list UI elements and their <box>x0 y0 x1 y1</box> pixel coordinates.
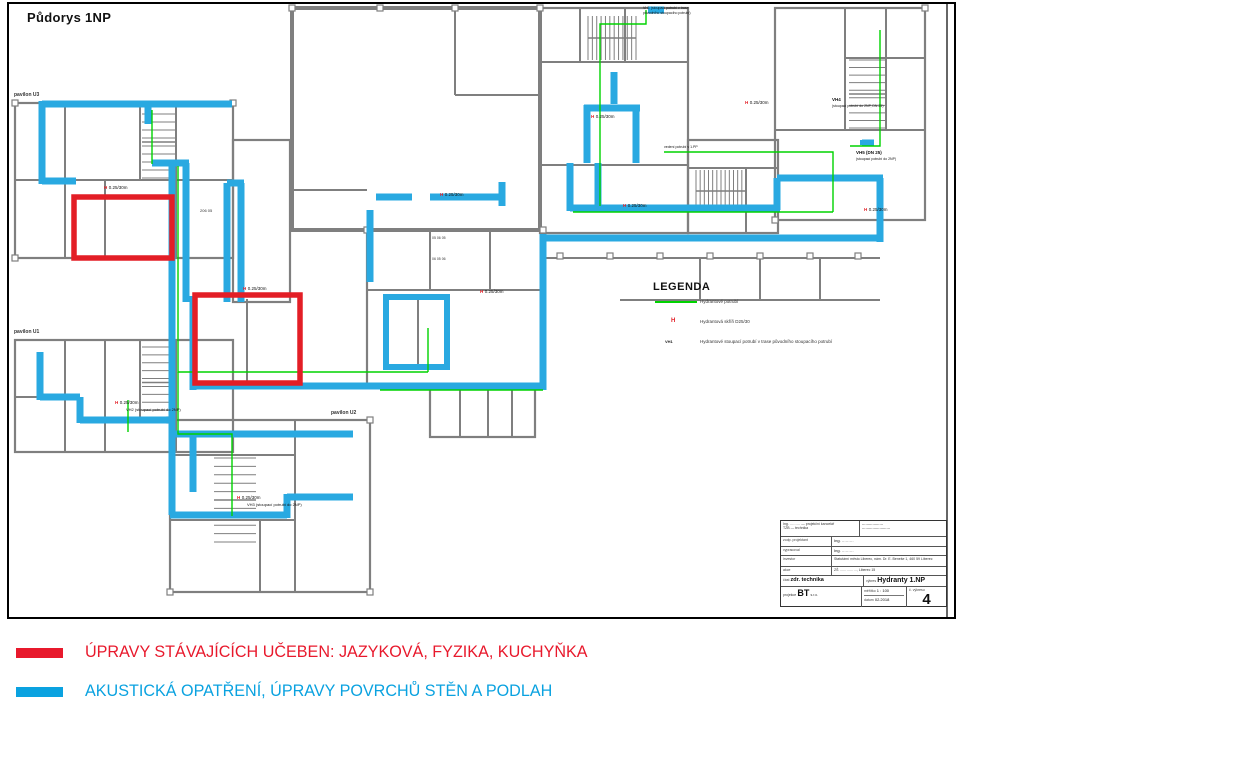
sheet-title: Půdorys 1NP <box>27 10 111 25</box>
vh1-glyph: VH1 <box>665 339 673 344</box>
stamp-note: projekce <box>783 593 796 597</box>
part-cell: část zdr. technika <box>781 576 863 586</box>
vh1-note: původního stoupacího potrubí) <box>643 11 690 15</box>
legend-item-pipe: Hydrantové potrubí <box>653 297 933 313</box>
stamp-logo: BT <box>797 588 809 598</box>
drawing-label: výkres <box>866 579 876 583</box>
hydrant-H-glyph: H <box>591 114 594 119</box>
hydrant-marker: H0.25/30m <box>243 286 267 291</box>
wall-outline <box>367 230 543 386</box>
scale-date-cell: měřítko 1 : 100 datum 02.2018 <box>861 587 906 607</box>
row-label: zodp. projektant <box>781 537 831 546</box>
column-marker <box>452 5 458 11</box>
footer-red-label: ÚPRAVY STÁVAJÍCÍCH UČEBEN: JAZYKOVÁ, FYZ… <box>85 642 588 662</box>
row-value: ZŠ ……………, Liberec 15 <box>831 567 946 575</box>
drawing-title: Hydranty 1.NP <box>877 577 925 584</box>
column-marker <box>757 253 763 259</box>
title-block: Ing. ……… — projekční kancelář TZB — tech… <box>780 520 947 607</box>
hydrant-marker: H0.25/30m <box>591 114 615 119</box>
screenshot-root: H0.25/30mH0.25/30mH0.25/30mH0.25/30mH0.2… <box>0 0 1252 758</box>
hydrant-spec-text: 0.25/30m <box>485 289 504 294</box>
blue-swatch <box>16 687 63 697</box>
hydrant-marker: H0.25/30m <box>104 185 128 190</box>
legend-item-label: Hydrantové stoupací potrubí v trase půvo… <box>700 339 832 344</box>
footer-legend-row-blue: AKUSTICKÁ OPATŘENÍ, ÚPRAVY POVRCHŮ STĚN … <box>0 684 1252 702</box>
hydrant-H-glyph: H <box>671 318 675 324</box>
hydrant-H-icon: H <box>653 317 697 327</box>
wall-outline <box>775 8 925 220</box>
column-marker <box>807 253 813 259</box>
date-label: datum <box>864 598 874 602</box>
column-marker <box>540 227 546 233</box>
drawing-cell: výkres Hydranty 1.NP <box>863 576 946 586</box>
scale-value: 1 : 100 <box>877 588 889 593</box>
column-marker <box>377 5 383 11</box>
row-label: vypracoval <box>781 547 831 555</box>
row-label: investor <box>781 556 831 566</box>
stamp-note: s.r.o. <box>810 593 818 597</box>
column-marker <box>922 5 928 11</box>
hydrant-spec-text: 0.25/30m <box>596 114 615 119</box>
pipe-note: vedení potrubí v 1.PP <box>664 145 698 149</box>
title-block-company: Ing. ……… — projekční kancelář TZB — tech… <box>781 521 859 536</box>
title-block-row: vypracoval Ing. ……… <box>781 547 946 556</box>
hydrant-spec-text: 0.25/30m <box>628 203 647 208</box>
title-block-row: zodp. projektant Ing. ……… <box>781 537 946 547</box>
column-marker <box>707 253 713 259</box>
hydrant-marker: H0.25/30m <box>237 495 261 500</box>
hydrant-marker: H0.25/30m <box>745 100 769 105</box>
sheet-number: 4 <box>909 592 944 607</box>
footer-legend-row-red: ÚPRAVY STÁVAJÍCÍCH UČEBEN: JAZYKOVÁ, FYZ… <box>0 645 1252 663</box>
vh5-note: (stoupací potrubí do 2NP) <box>856 157 896 161</box>
project-line: …………………… <box>862 526 944 530</box>
part-label: část <box>783 578 789 582</box>
column-marker <box>607 253 613 259</box>
vh4-note: (stoupací potrubí do 2NP, DN 25) <box>832 104 884 108</box>
hydrant-spec-text: 0.25/30m <box>445 192 464 197</box>
vh5-riser-mark <box>860 140 870 145</box>
room-label: 06 05 06 <box>432 257 446 261</box>
wall-outline <box>430 386 535 437</box>
row-value: Ing. ……… <box>831 537 946 546</box>
hydrant-marker: H0.25/30m <box>864 207 888 212</box>
column-marker <box>289 5 295 11</box>
hydrant-pipe <box>850 30 880 146</box>
acoustic-highlight-room <box>386 297 447 367</box>
column-marker <box>167 589 173 595</box>
legend-panel: LEGENDA Hydrantové potrubí H Hydrantová … <box>653 281 933 353</box>
scale-label: měřítko <box>864 589 876 593</box>
title-block-project: ……………… …………………… <box>859 521 946 536</box>
room-label: 05 06 05 <box>432 236 446 240</box>
row-label: akce <box>781 567 831 575</box>
hydrant-pipe <box>664 152 833 212</box>
column-marker <box>12 255 18 261</box>
title-block-row: akce ZŠ ……………, Liberec 15 <box>781 567 946 576</box>
hydrant-spec-text: 0.25/30m <box>120 400 139 405</box>
column-marker <box>772 217 778 223</box>
column-marker <box>367 417 373 423</box>
legend-title: LEGENDA <box>653 281 933 293</box>
title-block-bottom-row: projekce BT s.r.o. měřítko 1 : 100 datum… <box>781 587 946 607</box>
company-line: TZB — technika <box>783 526 857 530</box>
hydrant-spec-text: 0.25/30m <box>750 100 769 105</box>
column-marker <box>855 253 861 259</box>
column-marker <box>657 253 663 259</box>
green-line-icon <box>653 297 697 307</box>
stamp-cell: projekce BT s.r.o. <box>781 587 861 607</box>
column-marker <box>12 100 18 106</box>
pavilion-label-u1: pavilon U1 <box>14 329 39 335</box>
row-value: Statutární město Liberec, nám. Dr. E. Be… <box>831 556 946 566</box>
hydrant-H-glyph: H <box>864 207 867 212</box>
acoustic-highlight-layer <box>40 10 883 518</box>
legend-item-riser: VH1 Hydrantové stoupací potrubí v trase … <box>653 337 933 353</box>
hydrant-pipe <box>178 372 232 516</box>
title-block-header-row: Ing. ……… — projekční kancelář TZB — tech… <box>781 521 946 537</box>
date-value: 02.2018 <box>875 597 889 602</box>
hydrant-H-glyph: H <box>243 286 246 291</box>
legend-item-hydrant-box: H Hydrantová skříň D25/30 <box>653 317 933 333</box>
red-swatch <box>16 648 63 658</box>
legend-item-label: Hydrantová skříň D25/30 <box>700 319 750 324</box>
vh1-note: VH1 (stoupací potrubí v trase <box>643 6 689 10</box>
title-block-row: investor Statutární město Liberec, nám. … <box>781 556 946 567</box>
classroom-highlight <box>74 197 172 258</box>
hydrant-H-glyph: H <box>745 100 748 105</box>
title-block-part-row: část zdr. technika výkres Hydranty 1.NP <box>781 576 946 587</box>
part-value: zdr. technika <box>791 577 824 583</box>
column-marker <box>367 589 373 595</box>
room-label: 206 05 <box>200 208 213 213</box>
hydrant-spec-text: 0.25/30m <box>869 207 888 212</box>
legend-item-label: Hydrantové potrubí <box>700 299 738 304</box>
row-value: Ing. ……… <box>831 547 946 555</box>
vh5-label: VH5 (DN 25) <box>856 150 882 155</box>
vh2-note: VH2 (stoupací potrubí do 2NP) <box>126 407 181 412</box>
pavilion-label-u2: pavilon U2 <box>331 410 356 416</box>
hydrant-H-glyph: H <box>623 203 626 208</box>
hydrant-spec-text: 0.25/30m <box>248 286 267 291</box>
green-line-swatch <box>655 301 697 303</box>
hydrant-H-glyph: H <box>440 192 443 197</box>
pavilion-label-u3: pavilon U3 <box>14 92 39 98</box>
hydrant-H-glyph: H <box>115 400 118 405</box>
vh3-note: VH3 (stoupací potrubí do 2NP) <box>247 502 302 507</box>
hydrant-H-glyph: H <box>104 185 107 190</box>
hydrant-H-glyph: H <box>480 289 483 294</box>
column-marker <box>537 5 543 11</box>
sheet-number-cell: č. výkresu 4 <box>906 587 946 607</box>
hydrant-spec-text: 0.25/30m <box>242 495 261 500</box>
hydrant-spec-text: 0.25/30m <box>109 185 128 190</box>
hydrant-marker: H0.25/30m <box>115 400 139 405</box>
vh4-label: VH4 <box>832 97 841 102</box>
column-marker <box>557 253 563 259</box>
hydrant-H-glyph: H <box>237 495 240 500</box>
footer-blue-label: AKUSTICKÁ OPATŘENÍ, ÚPRAVY POVRCHŮ STĚN … <box>85 681 552 701</box>
vh1-symbol: VH1 <box>653 337 697 347</box>
